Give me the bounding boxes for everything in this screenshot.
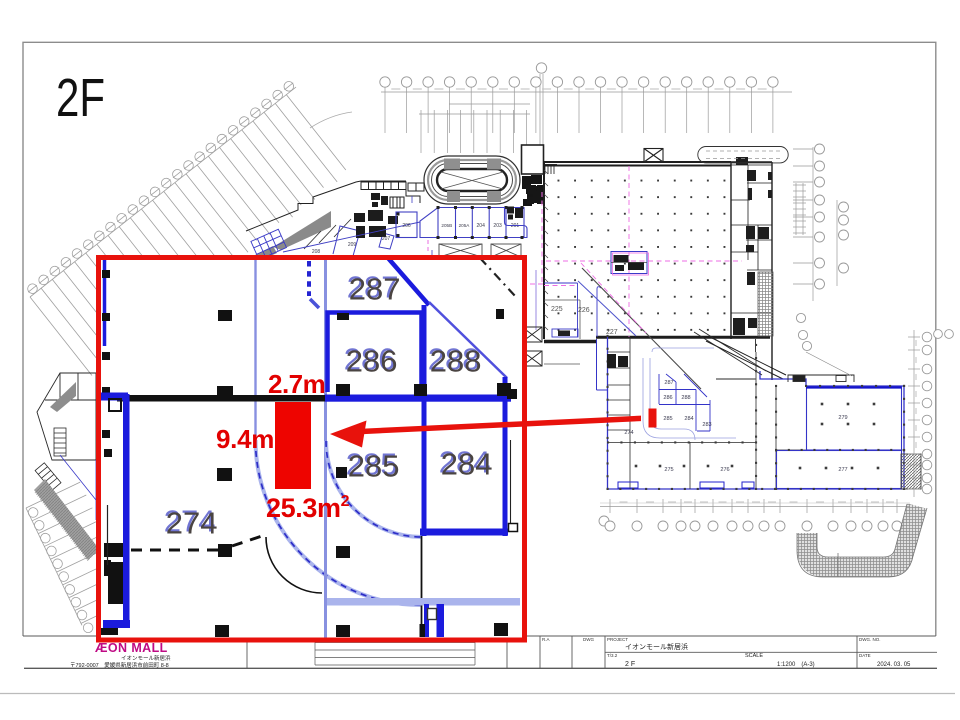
svg-text:288: 288 (430, 343, 482, 378)
svg-text:2.7m: 2.7m (268, 369, 325, 399)
svg-text:DWG: DWG (583, 637, 594, 642)
svg-text:9.4m: 9.4m (216, 424, 274, 454)
svg-text:287: 287 (349, 271, 401, 306)
svg-text:204: 204 (477, 223, 486, 229)
svg-text:283: 283 (702, 422, 711, 428)
svg-text:206: 206 (402, 223, 411, 229)
svg-text:DATE: DATE (859, 653, 871, 658)
svg-text:〒792-0007 愛媛県新居浜市前田町 8-8: 〒792-0007 愛媛県新居浜市前田町 8-8 (70, 661, 169, 669)
svg-text:R.A: R.A (542, 637, 550, 642)
svg-text:イオンモール新居浜: イオンモール新居浜 (625, 642, 688, 651)
svg-text:274: 274 (624, 430, 633, 436)
svg-text:205B: 205B (441, 223, 452, 228)
svg-text:207: 207 (382, 236, 391, 242)
svg-text:SCALE: SCALE (745, 653, 763, 659)
svg-text:286: 286 (346, 343, 398, 378)
svg-text:205A: 205A (459, 223, 471, 228)
svg-text:225: 225 (551, 306, 563, 313)
svg-text:279: 279 (838, 415, 847, 421)
svg-text:284: 284 (441, 446, 493, 481)
svg-text:285: 285 (348, 448, 400, 483)
svg-text:2 F: 2 F (625, 661, 635, 668)
svg-text:イオンモール新居浜: イオンモール新居浜 (121, 654, 171, 662)
svg-text:284: 284 (684, 416, 693, 422)
svg-text:288: 288 (681, 395, 690, 401)
svg-text:226: 226 (578, 307, 590, 314)
svg-text:2024. 03. 05: 2024. 03. 05 (877, 662, 911, 668)
svg-text:275: 275 (664, 467, 673, 473)
svg-text:1:1200 (A-3): 1:1200 (A-3) (777, 662, 815, 668)
svg-text:PROJECT: PROJECT (607, 637, 628, 642)
svg-text:25.3m2: 25.3m2 (266, 493, 350, 523)
svg-text:209: 209 (348, 242, 357, 248)
svg-text:274: 274 (166, 505, 218, 540)
svg-text:208: 208 (312, 249, 321, 255)
svg-text:203: 203 (493, 223, 502, 229)
svg-text:285: 285 (663, 416, 672, 422)
svg-text:286: 286 (663, 395, 672, 401)
svg-text:276: 276 (720, 467, 729, 473)
svg-text:277: 277 (838, 467, 847, 473)
svg-text:DWG. NO.: DWG. NO. (859, 637, 881, 642)
svg-text:287: 287 (664, 380, 673, 386)
svg-text:T/3.2: T/3.2 (607, 653, 618, 658)
svg-text:ÆON MALL: ÆON MALL (95, 641, 168, 655)
svg-text:2F: 2F (56, 68, 105, 128)
